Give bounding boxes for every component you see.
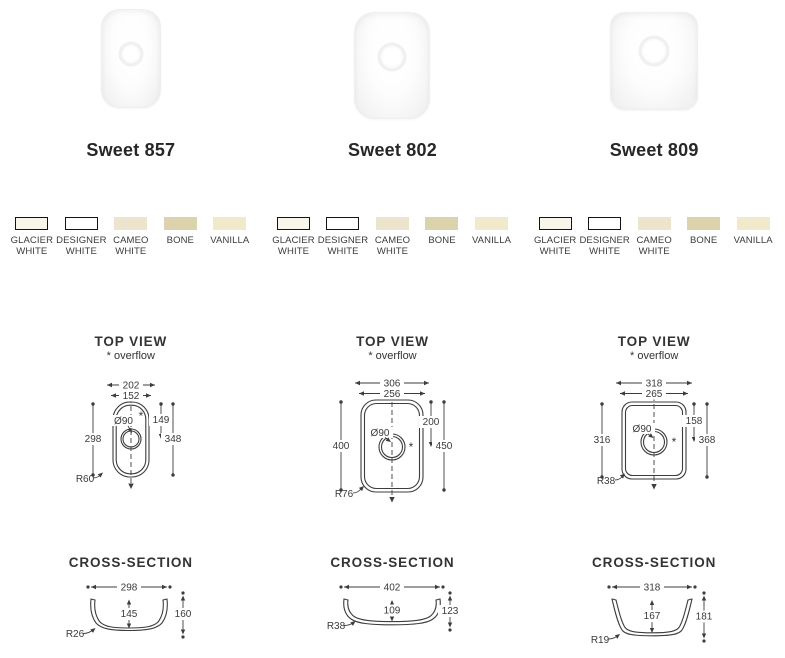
dim-drain-diameter: Ø90 xyxy=(371,428,390,439)
drain-hole xyxy=(121,44,140,63)
dim-drain-distance: 149 xyxy=(152,415,169,426)
cross-section-drawing-857: 298 145 160 R26 xyxy=(31,577,231,657)
overflow-marker: * xyxy=(672,435,677,449)
overflow-note: * overflow xyxy=(630,350,678,364)
swatch-chip xyxy=(376,217,409,230)
product-name: Sweet 809 xyxy=(610,140,699,165)
dim-corner-radius: R76 xyxy=(335,489,354,500)
product-image-area xyxy=(262,0,524,140)
swatch-designer-white: DESIGNER WHITE xyxy=(320,217,366,258)
top-view-drawing-809: 318 265 316 158 368 Ø90 xyxy=(554,376,754,511)
product-image-area xyxy=(523,0,785,140)
product-image-area xyxy=(0,0,262,140)
cross-section-title: CROSS-SECTION xyxy=(69,555,193,571)
sink-rendering-802 xyxy=(354,12,430,119)
swatch-bone: BONE xyxy=(681,217,727,258)
swatch-chip xyxy=(638,217,671,230)
dim-cs-outer-depth: 160 xyxy=(174,609,191,620)
swatch-glacier-white: GLACIER WHITE xyxy=(270,217,316,258)
sink-rendering-857 xyxy=(101,9,161,108)
product-column-sweet-857: Sweet 857 GLACIER WHITE DESIGNER WHITE C… xyxy=(0,0,262,658)
swatch-designer-white: DESIGNER WHITE xyxy=(58,217,104,258)
product-column-sweet-802: Sweet 802 GLACIER WHITE DESIGNER WHITE C… xyxy=(262,0,524,658)
swatch-chip xyxy=(588,217,621,230)
top-view-drawing-802: 306 256 400 200 450 Ø90 xyxy=(292,376,492,511)
swatch-vanilla: VANILLA xyxy=(207,217,253,258)
dim-cs-outer-depth: 181 xyxy=(696,611,713,622)
swatch-chip xyxy=(65,217,98,230)
swatch-vanilla: VANILLA xyxy=(730,217,776,258)
dim-drain-diameter: Ø90 xyxy=(114,416,133,427)
dim-cs-width: 318 xyxy=(644,582,661,593)
color-swatches: GLACIER WHITE DESIGNER WHITE CAMEO WHITE… xyxy=(9,217,253,258)
dim-inner-length: 298 xyxy=(84,434,101,445)
cross-section-title: CROSS-SECTION xyxy=(330,555,454,571)
top-view-title: TOP VIEW xyxy=(94,334,167,350)
swatch-chip xyxy=(326,217,359,230)
swatch-chip xyxy=(277,217,310,230)
dim-cs-inner-depth: 167 xyxy=(644,611,661,622)
dim-inner-width: 256 xyxy=(384,389,401,400)
dim-inner-length: 400 xyxy=(333,441,350,452)
cross-section-drawing-809: 318 167 181 R19 xyxy=(554,577,754,657)
top-view-title: TOP VIEW xyxy=(356,334,429,350)
swatch-cameo-white: CAMEO WHITE xyxy=(369,217,415,258)
swatch-chip xyxy=(737,217,770,230)
sink-rendering-809 xyxy=(610,12,698,110)
color-swatches: GLACIER WHITE DESIGNER WHITE CAMEO WHITE… xyxy=(532,217,776,258)
dim-inner-length: 316 xyxy=(594,435,611,446)
overflow-marker: * xyxy=(138,409,143,423)
dim-outer-length: 348 xyxy=(164,434,181,445)
dim-inner-width: 265 xyxy=(646,389,663,400)
swatch-chip xyxy=(164,217,197,230)
dim-cs-width: 402 xyxy=(384,582,401,593)
swatch-bone: BONE xyxy=(157,217,203,258)
dim-drain-diameter: Ø90 xyxy=(633,424,652,435)
dim-outer-length: 368 xyxy=(699,435,716,446)
top-view-drawing-857: 202 152 298 149 348 Ø90 xyxy=(31,376,231,511)
dim-drain-distance: 200 xyxy=(423,417,440,428)
overflow-note: * overflow xyxy=(368,350,416,364)
swatch-chip xyxy=(475,217,508,230)
catalog-page: Sweet 857 GLACIER WHITE DESIGNER WHITE C… xyxy=(0,0,785,658)
swatch-cameo-white: CAMEO WHITE xyxy=(108,217,154,258)
swatch-cameo-white: CAMEO WHITE xyxy=(631,217,677,258)
dim-corner-radius: R60 xyxy=(76,474,95,485)
dim-cs-radius: R38 xyxy=(327,621,346,632)
color-swatches: GLACIER WHITE DESIGNER WHITE CAMEO WHITE… xyxy=(270,217,514,258)
product-name: Sweet 857 xyxy=(86,140,175,165)
swatch-chip xyxy=(15,217,48,230)
drain-hole xyxy=(642,39,667,64)
dim-cs-inner-depth: 109 xyxy=(384,605,401,616)
swatch-chip xyxy=(213,217,246,230)
drain-hole xyxy=(381,46,404,69)
swatch-glacier-white: GLACIER WHITE xyxy=(9,217,55,258)
dim-inner-width: 152 xyxy=(122,391,139,402)
dim-corner-radius: R38 xyxy=(597,476,616,487)
cross-section-drawing-802: 402 109 123 R38 xyxy=(292,577,492,657)
cross-section-title: CROSS-SECTION xyxy=(592,555,716,571)
swatch-bone: BONE xyxy=(419,217,465,258)
swatch-glacier-white: GLACIER WHITE xyxy=(532,217,578,258)
dim-outer-length: 450 xyxy=(436,441,453,452)
swatch-designer-white: DESIGNER WHITE xyxy=(582,217,628,258)
product-name: Sweet 802 xyxy=(348,140,437,165)
dim-cs-radius: R26 xyxy=(66,629,85,640)
overflow-note: * overflow xyxy=(107,350,155,364)
product-column-sweet-809: Sweet 809 GLACIER WHITE DESIGNER WHITE C… xyxy=(523,0,785,658)
dim-cs-outer-depth: 123 xyxy=(442,606,459,617)
swatch-chip xyxy=(539,217,572,230)
swatch-chip xyxy=(425,217,458,230)
overflow-marker: * xyxy=(409,440,414,454)
dim-cs-inner-depth: 145 xyxy=(120,609,137,620)
dim-cs-radius: R19 xyxy=(591,635,610,646)
top-view-title: TOP VIEW xyxy=(618,334,691,350)
dim-cs-width: 298 xyxy=(120,582,137,593)
swatch-chip xyxy=(687,217,720,230)
dim-drain-distance: 158 xyxy=(686,416,703,427)
swatch-chip xyxy=(114,217,147,230)
swatch-vanilla: VANILLA xyxy=(468,217,514,258)
